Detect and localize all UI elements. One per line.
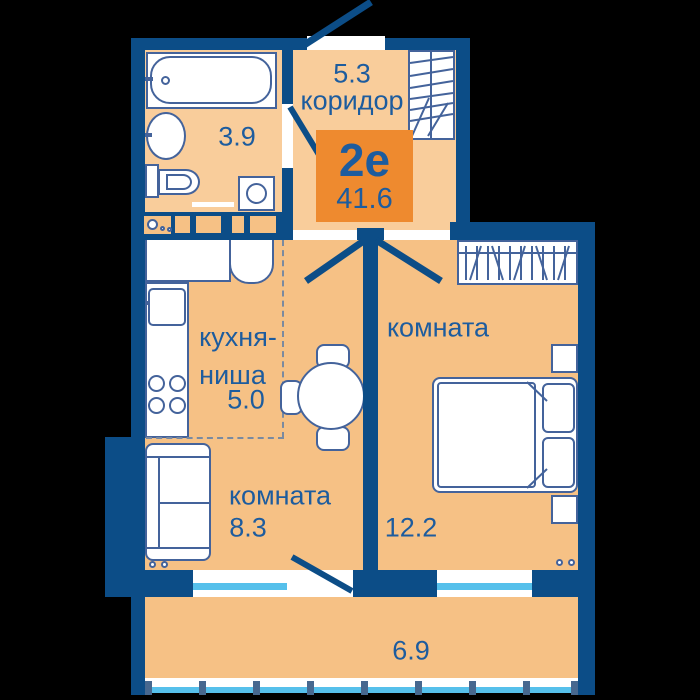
entrance-door-opening	[307, 36, 385, 50]
glazing-post	[199, 681, 206, 695]
wall-right	[578, 222, 595, 695]
vent-hole	[160, 226, 165, 231]
glazing-post	[307, 681, 314, 695]
wall-top	[131, 38, 307, 50]
glazing-post	[523, 681, 530, 695]
plan-type-badge: 2е 41.6	[316, 130, 413, 222]
glazing-post	[361, 681, 368, 695]
sofa-cushion-line	[160, 502, 209, 504]
washing-machine-door	[246, 183, 267, 204]
toilet-bowl	[166, 174, 192, 190]
nightstand-icon	[551, 495, 578, 524]
window-glass	[437, 583, 532, 590]
room1-area-label: 8.3	[229, 513, 267, 544]
corridor-name-label: коридор	[300, 86, 403, 117]
wall-bottom	[353, 570, 437, 597]
floorplan: 5.3 коридор 3.9 кухня- ниша 5.0 комната …	[0, 0, 700, 700]
kitchen-name-label: кухня- ниша	[199, 318, 277, 394]
bed-blanket	[437, 382, 536, 488]
wardrobe-icon	[457, 240, 578, 285]
wardrobe-icon	[408, 50, 455, 140]
glazing-post	[415, 681, 422, 695]
kitchen-name-line1: кухня-	[199, 318, 277, 356]
vent-hole	[147, 219, 158, 230]
room2-name-label: комната	[387, 313, 489, 344]
glazing-post	[469, 681, 476, 695]
bath-mat	[192, 202, 234, 207]
kitchen-counter-top	[145, 238, 231, 282]
glazing-post	[253, 681, 260, 695]
total-area-label: 41.6	[336, 183, 392, 215]
balcony-floor	[145, 597, 578, 681]
window-glass	[193, 583, 287, 590]
balcony-area-label: 6.9	[392, 636, 430, 667]
socket-mark	[568, 559, 575, 566]
kitchen-niche-boundary	[146, 437, 284, 439]
wall-room-partition	[363, 238, 378, 570]
wall-band-right	[450, 222, 578, 240]
sofa-armrest	[147, 456, 209, 458]
nightstand-icon	[551, 344, 578, 373]
bathroom-sink-icon	[146, 112, 186, 160]
kitchen-sink-icon	[148, 288, 186, 326]
room2-area-label: 12.2	[385, 513, 438, 544]
wall-bottom	[131, 570, 193, 597]
dining-table-icon	[297, 362, 365, 430]
vent-hole	[167, 227, 172, 232]
room1-name-label: комната	[229, 481, 331, 512]
stove-burner	[169, 397, 186, 414]
toilet-tank	[145, 164, 159, 198]
stove-burner	[148, 397, 165, 414]
glazing-post	[145, 681, 152, 695]
pillow-icon	[542, 383, 575, 433]
duct	[175, 216, 190, 233]
bathroom-door-opening	[282, 104, 293, 168]
sofa-foot	[161, 561, 168, 568]
sofa-foot	[149, 561, 156, 568]
sofa-armrest	[147, 547, 209, 549]
duct	[232, 216, 244, 233]
duct	[196, 216, 221, 233]
bathroom-area-label: 3.9	[218, 122, 256, 153]
glazing-post	[571, 681, 578, 695]
fridge-icon	[229, 238, 274, 284]
bathtub-tap	[144, 77, 153, 81]
balcony-door-opening	[287, 570, 353, 597]
wall-corridor-right	[456, 38, 470, 240]
pillow-icon	[542, 437, 575, 488]
socket-mark	[556, 559, 563, 566]
stove-burner	[169, 375, 186, 392]
kitchen-area-label: 5.0	[227, 385, 265, 416]
duct	[250, 216, 276, 233]
wall-bottom	[532, 570, 595, 597]
bathtub-drain	[161, 76, 170, 85]
plan-type-label: 2е	[339, 137, 390, 183]
stove-burner	[148, 375, 165, 392]
